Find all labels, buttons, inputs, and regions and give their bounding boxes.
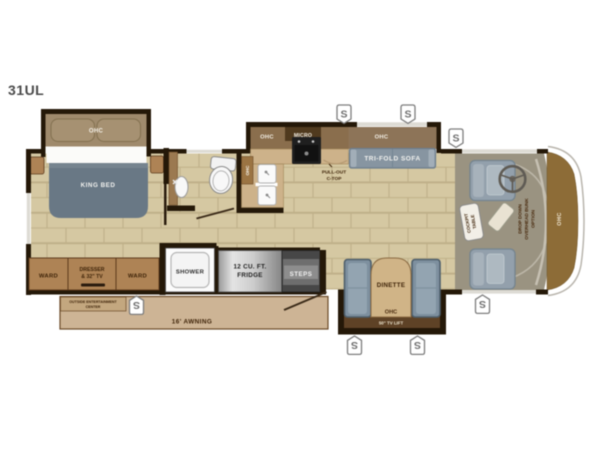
svg-text:WARD: WARD	[39, 274, 58, 280]
svg-text:DINETTE: DINETTE	[377, 282, 406, 289]
svg-text:OHC: OHC	[245, 165, 250, 176]
svg-text:OVERHEAD BUNK: OVERHEAD BUNK	[524, 198, 529, 240]
svg-text:CENTER: CENTER	[86, 305, 101, 309]
svg-text:SHOWER: SHOWER	[176, 270, 205, 276]
svg-text:16' AWNING: 16' AWNING	[172, 319, 212, 326]
svg-text:KING BED: KING BED	[81, 182, 116, 189]
svg-text:OHC: OHC	[375, 135, 389, 141]
svg-text:DRESSER: DRESSER	[79, 267, 104, 273]
svg-text:OHC: OHC	[89, 129, 104, 135]
svg-text:OHC: OHC	[260, 135, 274, 141]
svg-text:DROP DOWN: DROP DOWN	[518, 204, 523, 234]
svg-text:FRIDGE: FRIDGE	[237, 272, 263, 279]
svg-text:TRI-FOLD SOFA: TRI-FOLD SOFA	[364, 156, 420, 163]
svg-text:OPTION: OPTION	[531, 209, 536, 228]
svg-text:50" TV LIFT: 50" TV LIFT	[379, 321, 404, 326]
svg-text:WARD: WARD	[128, 274, 147, 280]
svg-text:12 CU. FT.: 12 CU. FT.	[233, 264, 266, 271]
svg-text:PULL-OUT: PULL-OUT	[322, 170, 346, 176]
svg-text:STEPS: STEPS	[290, 271, 313, 278]
svg-text:C-TOP: C-TOP	[327, 176, 343, 182]
svg-text:OHC: OHC	[557, 212, 563, 225]
svg-text:& 32" TV: & 32" TV	[81, 274, 103, 280]
svg-text:31UL: 31UL	[8, 82, 44, 98]
svg-text:OUTSIDE ENTERTAINMENT: OUTSIDE ENTERTAINMENT	[69, 300, 117, 304]
svg-text:OHC: OHC	[385, 310, 397, 316]
